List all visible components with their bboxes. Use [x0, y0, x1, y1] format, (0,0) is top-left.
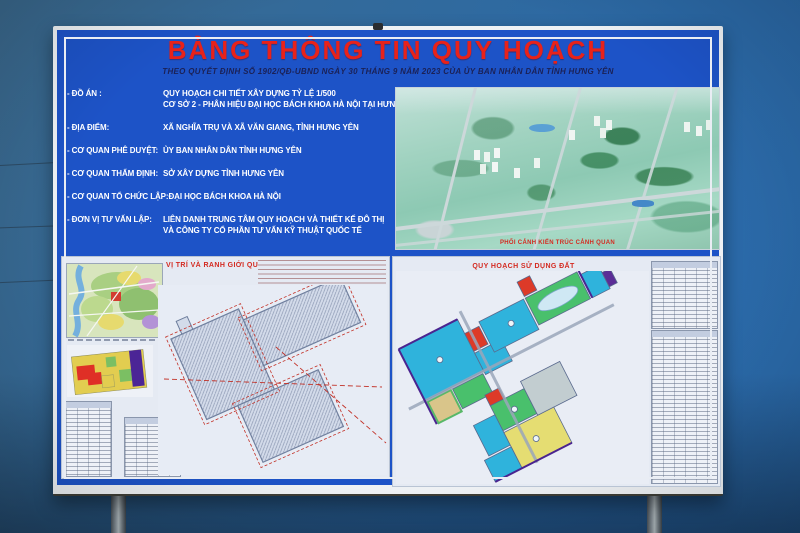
project-info-block: - ĐỒ ÁN : QUY HOẠCH CHI TIẾT XÂY DỰNG TỶ… — [67, 88, 403, 248]
info-label: - CƠ QUAN TỔ CHỨC LẬP: — [67, 191, 168, 202]
render-pond — [529, 124, 555, 132]
info-value: SỞ XÂY DỰNG TỈNH HƯNG YÊN — [163, 168, 403, 179]
mounting-clamp — [373, 23, 383, 30]
info-row-do-an: - ĐỒ ÁN : QUY HOẠCH CHI TIẾT XÂY DỰNG TỶ… — [67, 88, 403, 110]
aerial-render-image: PHỐI CẢNH KIẾN TRÚC CẢNH QUAN — [395, 87, 720, 250]
info-row-tu-van-lap: - ĐƠN VỊ TƯ VẤN LẬP: LIÊN DANH TRUNG TÂM… — [67, 214, 403, 236]
board-subtitle: THEO QUYẾT ĐỊNH SỐ 1902/QĐ-UBND NGÀY 30 … — [53, 67, 723, 76]
info-value: XÃ NGHĨA TRỤ VÀ XÃ VĂN GIANG, TỈNH HƯNG … — [163, 122, 403, 133]
billboard: BẢNG THÔNG TIN QUY HOẠCH THEO QUYẾT ĐỊNH… — [53, 26, 723, 496]
info-row-tham-dinh: - CƠ QUAN THẨM ĐỊNH: SỞ XÂY DỰNG TỈNH HƯ… — [67, 168, 403, 179]
info-row-dia-diem: - ĐỊA ĐIỂM: XÃ NGHĨA TRỤ VÀ XÃ VĂN GIANG… — [67, 122, 403, 133]
info-value: ĐẠI HỌC BÁCH KHOA HÀ NỘI — [168, 191, 403, 202]
info-label: - CƠ QUAN PHÊ DUYỆT: — [67, 145, 163, 156]
info-label: - ĐỊA ĐIỂM: — [67, 122, 163, 133]
panel-land-use-title: QUY HOẠCH SỬ DỤNG ĐẤT — [393, 263, 654, 270]
board-title: BẢNG THÔNG TIN QUY HOẠCH — [53, 35, 723, 66]
info-value: LIÊN DANH TRUNG TÂM QUY HOẠCH VÀ THIẾT K… — [163, 214, 403, 236]
render-caption: PHỐI CẢNH KIẾN TRÚC CẢNH QUAN — [396, 240, 719, 246]
panel-land-use: QUY HOẠCH SỬ DỤNG ĐẤT — [392, 256, 721, 487]
zoning-thumbnail — [67, 345, 153, 397]
render-buildings — [474, 150, 480, 160]
regional-map — [66, 263, 163, 338]
legend-table-lower — [651, 330, 718, 484]
site-plan-drawing — [158, 285, 387, 475]
legend-table-upper — [651, 261, 718, 329]
support-pole-left — [111, 490, 126, 533]
render-pond — [632, 200, 654, 207]
info-row-to-chuc-lap: - CƠ QUAN TỔ CHỨC LẬP: ĐẠI HỌC BÁCH KHOA… — [67, 191, 403, 202]
info-label: - ĐỒ ÁN : — [67, 88, 163, 110]
regional-map-caption — [68, 339, 158, 341]
info-value: ỦY BAN NHÂN DÂN TỈNH HƯNG YÊN — [163, 145, 403, 156]
info-value: QUY HOẠCH CHI TIẾT XÂY DỰNG TỶ LỆ 1/500 … — [163, 88, 419, 110]
info-label: - ĐƠN VỊ TƯ VẤN LẬP: — [67, 214, 163, 236]
info-label: - CƠ QUAN THẨM ĐỊNH: — [67, 168, 163, 179]
coordinate-table-1 — [65, 401, 112, 477]
land-use-plan-drawing — [396, 271, 649, 484]
info-row-phe-duyet: - CƠ QUAN PHÊ DUYỆT: ỦY BAN NHÂN DÂN TỈN… — [67, 145, 403, 156]
panel-location-boundary: VỊ TRÍ VÀ RANH GIỚI QUY HOẠCH — [61, 256, 390, 479]
render-road — [622, 87, 683, 250]
photo-scene: BẢNG THÔNG TIN QUY HOẠCH THEO QUYẾT ĐỊNH… — [0, 0, 800, 533]
